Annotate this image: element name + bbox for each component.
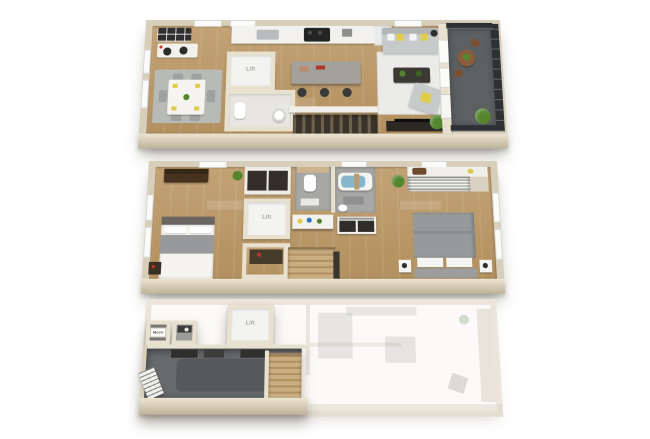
bed-blanket [160, 235, 214, 254]
closet-side [470, 177, 489, 192]
bed-headboard [161, 217, 214, 225]
pedestal-sink [338, 205, 347, 212]
wardrobe-front [268, 171, 287, 191]
storage-item [240, 350, 265, 358]
bath-mat [301, 199, 319, 206]
countertop-appliance [342, 29, 352, 37]
kitchen-sink [256, 29, 280, 41]
plant [391, 175, 404, 188]
storage-item [171, 350, 198, 358]
bed-pillow [446, 258, 472, 267]
bed-pillow [190, 227, 212, 233]
level-2-slab: Lift [141, 161, 505, 294]
ghost-counter [346, 307, 416, 316]
table-lamp [483, 263, 488, 268]
sofa-pillow [409, 34, 416, 41]
burner [318, 31, 322, 35]
vanity-item-plant [317, 219, 322, 224]
level-1-colored-region: Lift Mech [139, 299, 308, 417]
level-1-floor-plan: Lift Mech [139, 299, 504, 417]
skylight-window [199, 161, 227, 168]
window [143, 50, 152, 74]
ghost-plant [459, 315, 470, 325]
placemat [171, 106, 176, 110]
loveseat-back [164, 169, 208, 174]
closet-hanging-area [407, 177, 470, 192]
level-1-front-wall [139, 398, 308, 415]
sofa-pillow [420, 34, 427, 41]
wood-highlight [207, 201, 248, 210]
stair-half-wall [289, 106, 380, 112]
vanity-item-yellow [297, 219, 302, 224]
yellow-bowl [467, 169, 473, 174]
floor-lamp [430, 30, 437, 37]
plant-on-table [399, 71, 405, 77]
stairs [268, 353, 301, 398]
level-3-slab: Lift [138, 20, 508, 148]
bed-duvet-fold [413, 231, 475, 234]
balcony-plant [475, 108, 491, 124]
sofa-pillow [387, 34, 394, 41]
table-lamp [402, 263, 407, 268]
dining-chair [207, 90, 216, 102]
stairs [288, 247, 336, 278]
dining-chair [158, 90, 167, 102]
stacked-floor-plan-render: Lift [0, 0, 650, 439]
plant-on-table [416, 71, 422, 77]
washer-dryer-controls [339, 218, 374, 220]
bed-duvet [413, 213, 476, 258]
potted-plant-on-table [463, 54, 470, 61]
bar-stool [297, 88, 306, 97]
dresser [249, 249, 282, 264]
cutting-board [300, 67, 309, 72]
bar-stool [320, 88, 329, 97]
window [494, 229, 503, 260]
lift-label: Lift [231, 322, 269, 327]
tub-caddy [354, 174, 359, 190]
coffee-table [393, 68, 430, 83]
sofa-pillow [396, 34, 403, 41]
bed-headboard [414, 268, 477, 277]
placemat [172, 84, 177, 88]
ghost-front-wall [310, 404, 504, 417]
red-kitchen-item [316, 66, 325, 70]
placemat [195, 84, 200, 88]
vanity-item-blue [307, 218, 312, 223]
bed-pillow [164, 227, 186, 233]
bath-shelf [297, 167, 329, 173]
dryer-front [358, 221, 375, 232]
window [492, 193, 501, 223]
mech-label: Mech [151, 329, 166, 337]
ghost-bed [318, 313, 353, 359]
washer-front [339, 221, 355, 232]
stairs-down [293, 115, 378, 134]
cooktop-range [304, 28, 330, 42]
balcony-railing [451, 125, 499, 131]
level-3-front-wall [138, 134, 508, 149]
storage-item [204, 350, 225, 358]
kitchen-island [291, 62, 361, 84]
nightstand [148, 262, 161, 275]
wardrobe-front [247, 171, 267, 191]
lift-label: Lift [247, 216, 286, 221]
placemat [194, 106, 199, 110]
balcony-railing [446, 23, 492, 29]
level-2-floor-plan: Lift [141, 161, 505, 294]
level-3-floor-plan: Lift [138, 20, 508, 148]
skylight-window [394, 20, 422, 27]
suitcase [412, 168, 426, 175]
pedestal-sink [272, 108, 286, 122]
ghost-table [385, 337, 416, 363]
bath-mat [343, 197, 363, 205]
stair-railing [333, 252, 339, 279]
skylight-window [194, 20, 222, 27]
bed-pillow [417, 258, 443, 267]
bar-stool [342, 88, 351, 97]
toilet [234, 102, 246, 119]
tv-screen [394, 119, 433, 122]
level-2-front-wall [141, 279, 505, 294]
burner [308, 31, 312, 35]
glass-panel-range [157, 28, 192, 42]
toilet [304, 175, 316, 192]
wood-highlight [400, 201, 441, 210]
lift-label: Lift [230, 68, 271, 73]
